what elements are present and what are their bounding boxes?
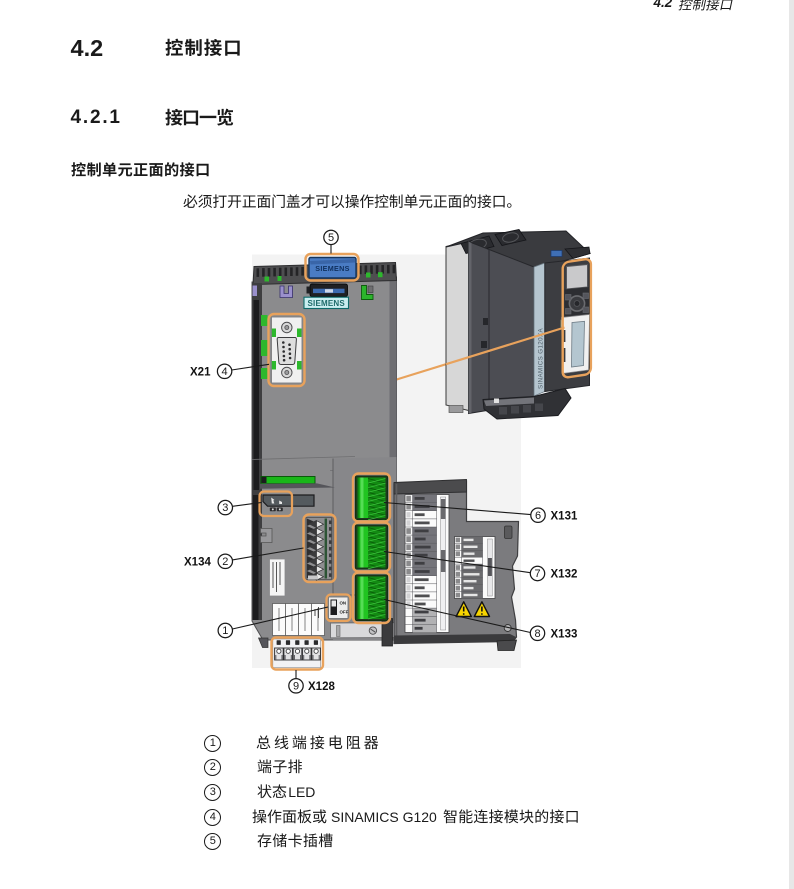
svg-text:5: 5	[328, 232, 334, 244]
svg-text:X132: X132	[551, 569, 578, 581]
svg-text:SINAMICS G120XA: SINAMICS G120XA	[538, 328, 545, 389]
svg-text:X133: X133	[551, 628, 578, 640]
svg-text:9: 9	[293, 680, 299, 692]
svg-text:1: 1	[222, 625, 228, 637]
svg-text:7: 7	[534, 568, 540, 580]
svg-text:3: 3	[222, 502, 228, 514]
svg-text:X21: X21	[190, 366, 211, 378]
svg-text:X131: X131	[551, 510, 578, 522]
svg-text:4: 4	[222, 366, 228, 378]
svg-text:X134: X134	[184, 557, 211, 569]
svg-text:8: 8	[534, 628, 540, 640]
svg-text:6: 6	[535, 510, 541, 522]
svg-text:OFF: OFF	[340, 610, 349, 615]
svg-text:2: 2	[222, 556, 228, 568]
svg-text:X128: X128	[308, 681, 335, 693]
svg-text:SIEMENS: SIEMENS	[315, 264, 349, 273]
svg-text:ON: ON	[340, 601, 347, 606]
svg-text:SIEMENS: SIEMENS	[307, 299, 345, 308]
